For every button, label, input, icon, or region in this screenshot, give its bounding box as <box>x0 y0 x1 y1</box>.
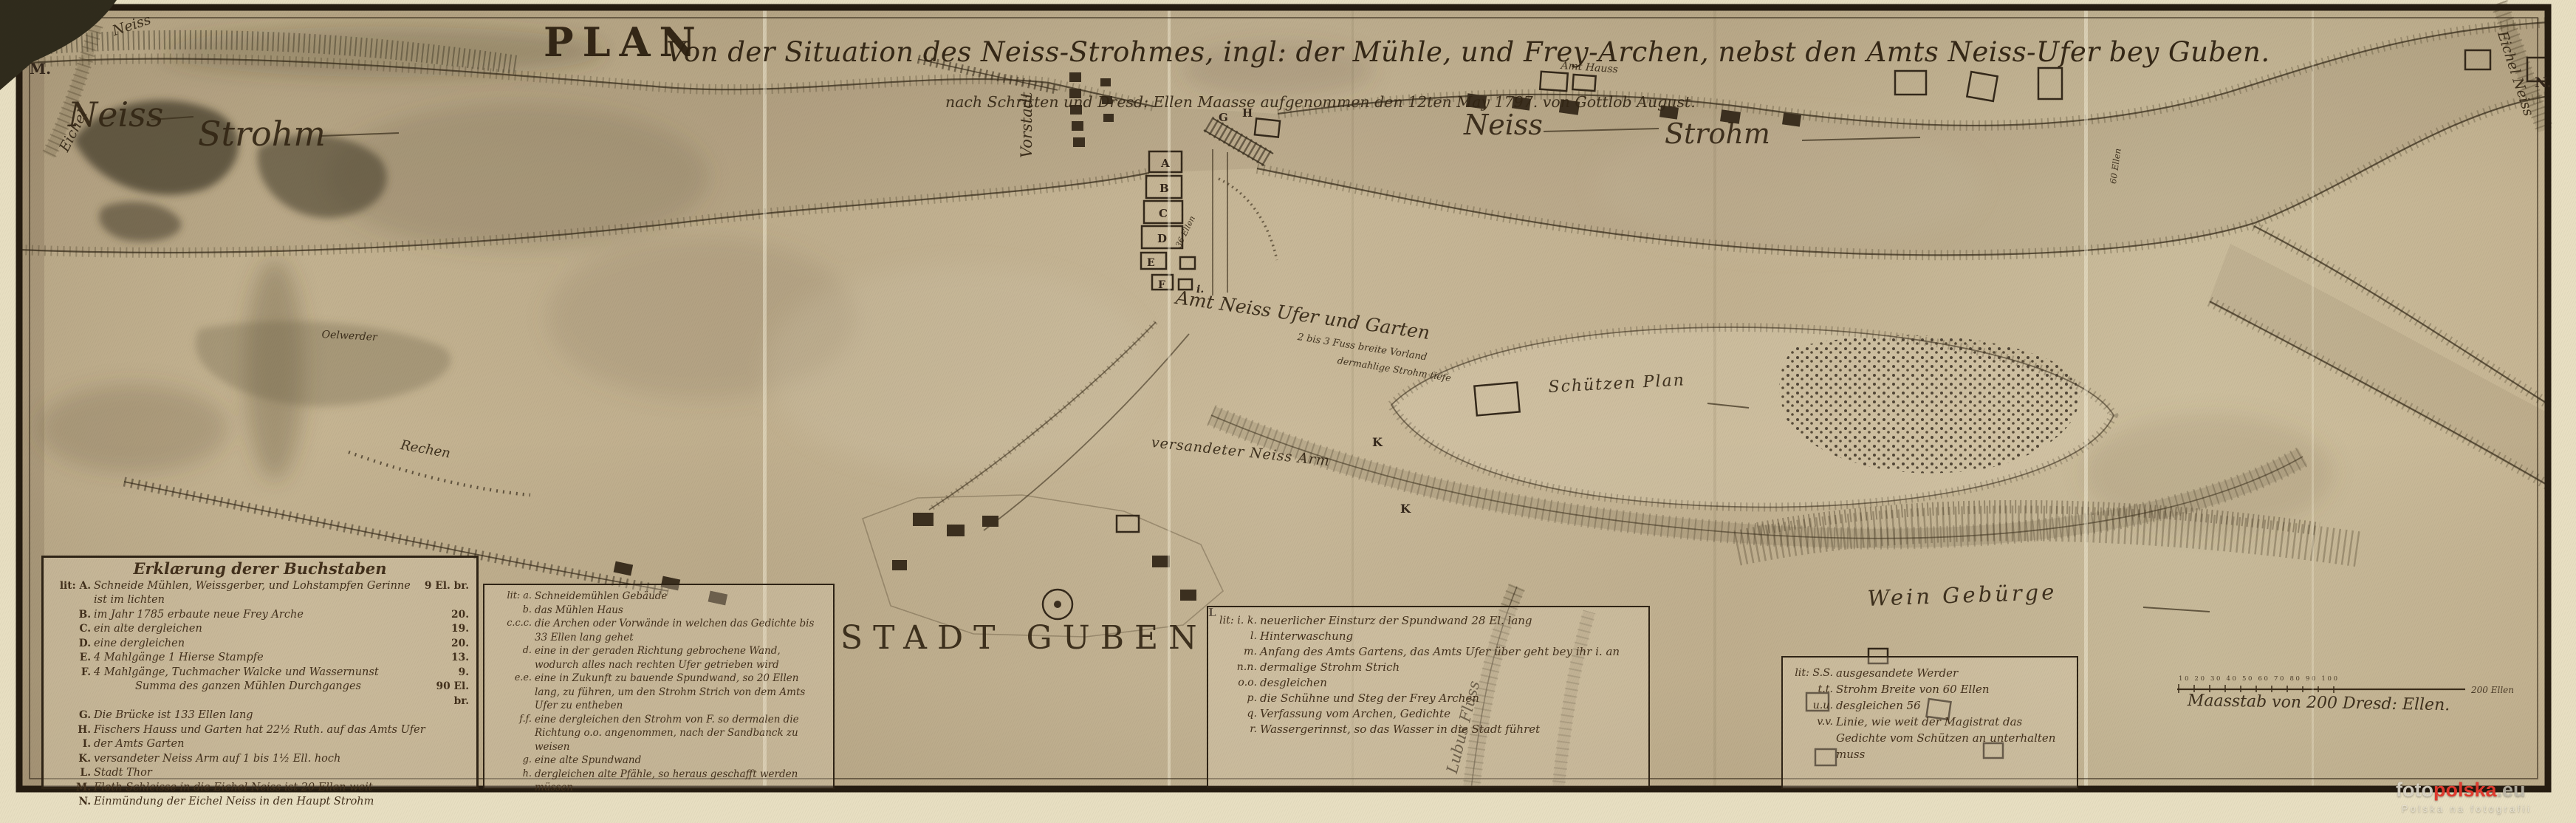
legend-row: D.eine dergleichen20. <box>51 637 469 652</box>
watermark: fotopolska.eu <box>2396 779 2526 802</box>
letter-D: D <box>1157 232 1167 245</box>
letter-E: E <box>1147 257 1155 269</box>
neisse-label-left-2: Strohm <box>198 117 326 151</box>
letter-A: A <box>1160 157 1170 170</box>
legend-row: b.das Mühlen Haus <box>492 604 826 618</box>
legend-row: E.4 Mahlgänge 1 Hierse Stampfe13. <box>51 651 469 666</box>
legend-row: v.v.Linie, wie weit der Magistrat das Ge… <box>1793 714 2066 762</box>
legend-box-letters-a-h: lit: a.Schneidemühlen Gebäude b.das Mühl… <box>483 584 835 789</box>
scale-end-label: 200 Ellen <box>2470 685 2514 695</box>
legend-row: o.o.desgleichen <box>1217 675 1640 691</box>
legend-header: Erklærung derer Buchstaben <box>51 559 469 579</box>
oelwerder-label: Oelwerder <box>321 329 377 343</box>
legend-row: B.im Jahr 1785 erbaute neue Frey Arche20… <box>51 608 469 623</box>
legend-row: F.4 Mahlgänge, Tuchmacher Walcke und Was… <box>51 666 469 680</box>
neisse-label-right-1: Neiss <box>1464 111 1543 139</box>
map-title: Von der Situation des Neiss-Strohmes, in… <box>666 38 2270 66</box>
legend-row: n.n.dermalige Strohm Strich <box>1217 660 1640 675</box>
stadt-guben-label: STADT GUBEN <box>840 622 1207 655</box>
legend-row: m.Anfang des Amts Gartens, das Amts Ufer… <box>1217 644 1640 660</box>
legend-row: lit: A.Schneide Mühlen, Weissgerber, und… <box>51 579 469 608</box>
vorstadt-label: Vorstadt <box>1019 92 1035 158</box>
legend-row: L.Stadt Thor <box>51 766 469 781</box>
legend-row: l.Hinterwaschung <box>1217 629 1640 644</box>
letter-G: G <box>1219 111 1228 124</box>
legend-box-letters-i-r: lit: i. k.neuerlicher Einsturz der Spund… <box>1207 606 1650 788</box>
neisse-label-right-2: Strohm <box>1665 120 1770 148</box>
legend-box-letters-s-v: lit: S.S.ausgesandete Werder t.t.Strohm … <box>1781 656 2078 789</box>
letter-F: F <box>1158 279 1165 291</box>
legend-row: K.versandeter Neiss Arm auf 1 bis 1½ Ell… <box>51 752 469 767</box>
legend-row: e.e.eine in Zukunft zu bauende Spundwand… <box>492 672 826 713</box>
watermark-part1: foto <box>2396 779 2433 801</box>
legend-row: p.die Schühne und Steg der Frey Archen <box>1217 691 1640 706</box>
legend-row: lit: S.S.ausgesandete Werder <box>1793 665 2066 681</box>
historic-map-scan: 10 20 30 40 50 60 70 80 90 100 200 Ellen… <box>0 0 2576 823</box>
letter-C: C <box>1159 207 1168 220</box>
legend-row: h.dergleichen alte Pfähle, so heraus ges… <box>492 768 826 795</box>
letter-K2: K <box>1400 502 1411 516</box>
legend-row: c.c.c.die Archen oder Vorwände in welche… <box>492 617 826 644</box>
legend-row: u.u.desgleichen 56 <box>1793 697 2066 714</box>
map-subtitle: nach Schritten und Dresd: Ellen Maasse a… <box>945 95 1696 110</box>
watermark-tagline: Polska na fotografii <box>2402 804 2532 814</box>
legend-row: t.t.Strohm Breite von 60 Ellen <box>1793 681 2066 697</box>
legend-row: d.eine in der geraden Richtung gebrochen… <box>492 644 826 672</box>
legend-row: lit: i. k.neuerlicher Einsturz der Spund… <box>1217 613 1640 629</box>
wein-gebuerge-label: Wein Gebürge <box>1867 581 2058 609</box>
legend-box-letters-A-N: Erklærung derer Buchstaben lit: A.Schnei… <box>41 556 479 789</box>
legend-row: g.eine alte Spundwand <box>492 754 826 768</box>
letter-B: B <box>1159 182 1169 195</box>
legend-row: N.Einmündung der Eichel Neiss in den Hau… <box>51 795 469 810</box>
legend-row: H.Fischers Hauss und Garten hat 22½ Ruth… <box>51 723 469 738</box>
legend-row: q.Verfassung vom Archen, Gedichte <box>1217 706 1640 722</box>
legend-row: I.der Amts Garten <box>51 737 469 752</box>
legend-row: lit: a.Schneidemühlen Gebäude <box>492 590 826 604</box>
legend-row: Summa des ganzen Mühlen Durchganges90 El… <box>51 680 469 708</box>
letter-K1: K <box>1372 435 1383 449</box>
watermark-part2: polska <box>2433 779 2497 801</box>
legend-row: f.f.eine dergleichen den Strohm von F. s… <box>492 713 826 754</box>
legend-row: r.Wassergerinnst, so das Wasser in die S… <box>1217 722 1640 737</box>
watermark-part3: .eu <box>2497 779 2526 801</box>
letter-N: N. <box>2535 75 2552 91</box>
legend-row: G.Die Brücke ist 133 Ellen lang <box>51 708 469 723</box>
legend-row: M.Floth Schleisse in die Eichel Neiss is… <box>51 781 469 796</box>
letter-M: M. <box>30 60 51 78</box>
legend-row: C.ein alte dergleichen19. <box>51 622 469 637</box>
